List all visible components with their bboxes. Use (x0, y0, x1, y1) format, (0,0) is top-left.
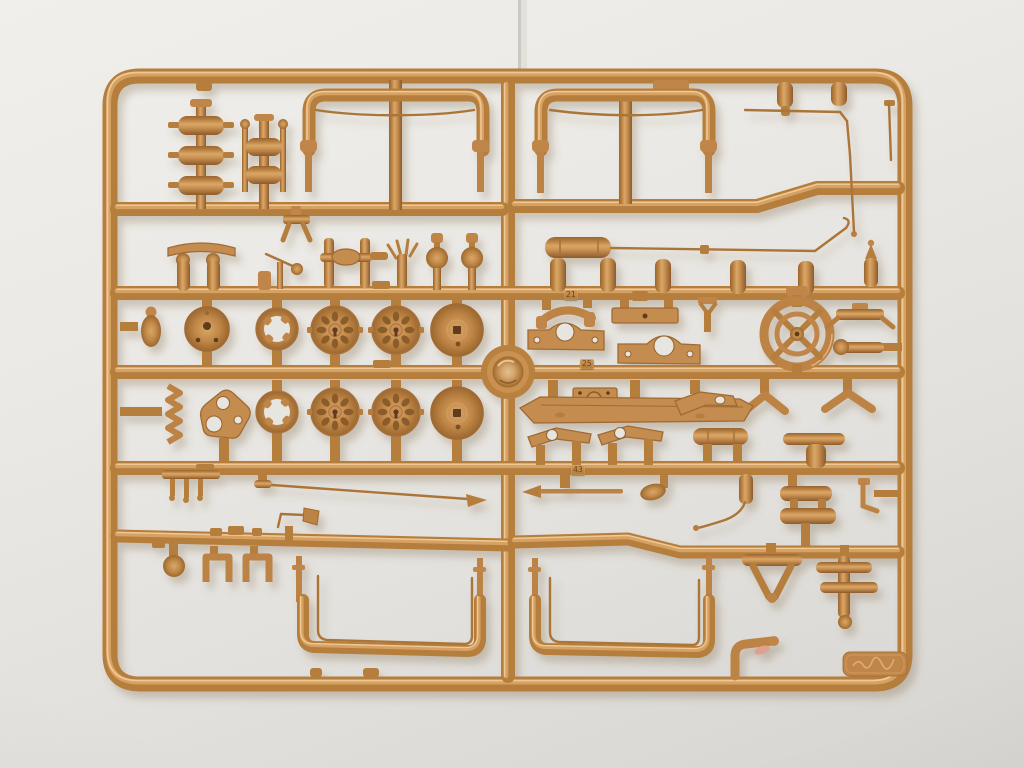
part-bar-with-box (827, 303, 893, 327)
wheel-domed-1 (431, 296, 483, 367)
part-bracket-plate-2 (618, 336, 700, 364)
part-cylinder-sleeve (693, 428, 748, 463)
center-gate-boss (481, 345, 535, 399)
part-slanted-rod (258, 254, 303, 290)
part-stacked-rollers (780, 472, 836, 547)
part-comb-bracket (388, 240, 417, 288)
part-gullwing-bracket-2 (825, 378, 872, 409)
part-axle-rod (545, 218, 849, 258)
part-shift-knob-2 (461, 233, 483, 290)
part-triangular-plate (201, 390, 251, 462)
part-u-clamp-2 (246, 546, 269, 582)
part-ball-knob (152, 540, 185, 577)
runner-row1-left (117, 205, 502, 209)
part-exhaust-stack-double (240, 114, 288, 209)
wheel-domed-2 (431, 380, 483, 463)
part-sawtooth-strip (120, 386, 180, 442)
wheel-solid-disc (185, 298, 229, 367)
part-lever-arm-2 (598, 426, 663, 465)
part-top-right-rods (745, 82, 895, 237)
part-h-linkage (320, 238, 388, 288)
part-flat-bar (612, 300, 678, 323)
part-number-tag-21: 21 (564, 290, 578, 300)
part-number-tag-43: 43 (571, 465, 585, 475)
runner-row4 (117, 464, 898, 474)
part-shift-knob-1 (426, 233, 448, 290)
part-exhaust-stack-triple (168, 99, 234, 209)
photo-model-kit-sprue: 21 25 43 (0, 0, 1024, 768)
wheel-ring-2 (256, 380, 298, 462)
part-fender-left (292, 556, 486, 651)
part-seat-bench (168, 243, 235, 291)
part-elbow-pipe (735, 636, 779, 676)
part-u-clamp-1 (206, 546, 229, 582)
wheel-ring-1 (256, 300, 298, 366)
part-paddle (638, 474, 668, 503)
part-rake (162, 470, 220, 503)
wheel-spoked-4 (368, 380, 424, 463)
gate-stub (363, 668, 379, 677)
wheel-spoked-1 (307, 298, 363, 367)
wheel-spoked-2 (368, 298, 424, 367)
maker-stamp-tab (843, 652, 907, 676)
gate-stub (196, 82, 212, 91)
blank-number-tab (632, 291, 648, 301)
part-round-end-bar (833, 339, 902, 355)
part-frame-clip (858, 478, 900, 511)
part-pear-blob (120, 307, 161, 348)
wheel-spoked-3 (307, 380, 363, 463)
part-number-tag-25: 25 (580, 359, 594, 369)
runner-row5-left (117, 526, 508, 545)
part-rod-with-arrow (522, 474, 623, 498)
part-whip-rod (254, 473, 487, 507)
part-lever-arm-1 (528, 428, 591, 465)
part-roof-bow-right (532, 80, 717, 204)
part-roof-bow-left (300, 80, 489, 210)
part-winged-pin (698, 297, 717, 332)
part-fender-right (528, 556, 715, 652)
part-hook-wire-post (693, 474, 753, 531)
gate-stub (310, 668, 322, 677)
sprue-graphic (0, 0, 1024, 768)
